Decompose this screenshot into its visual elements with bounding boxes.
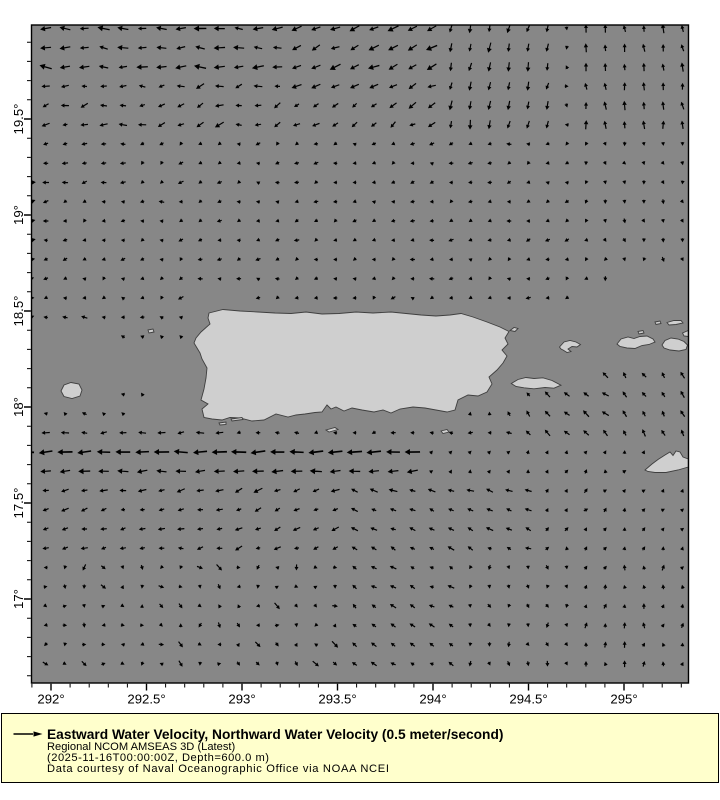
svg-text:295°: 295°: [610, 692, 637, 707]
svg-text:293.5°: 293.5°: [318, 692, 356, 707]
svg-text:292°: 292°: [37, 692, 64, 707]
svg-text:19.5°: 19.5°: [11, 104, 26, 135]
svg-text:18.5°: 18.5°: [11, 296, 26, 327]
svg-text:293°: 293°: [228, 692, 255, 707]
svg-text:18°: 18°: [11, 397, 26, 417]
svg-text:294.5°: 294.5°: [509, 692, 547, 707]
svg-text:17°: 17°: [11, 589, 26, 609]
svg-text:17.5°: 17.5°: [11, 488, 26, 519]
svg-text:294°: 294°: [419, 692, 446, 707]
svg-text:292.5°: 292.5°: [127, 692, 165, 707]
svg-text:19°: 19°: [11, 205, 26, 225]
